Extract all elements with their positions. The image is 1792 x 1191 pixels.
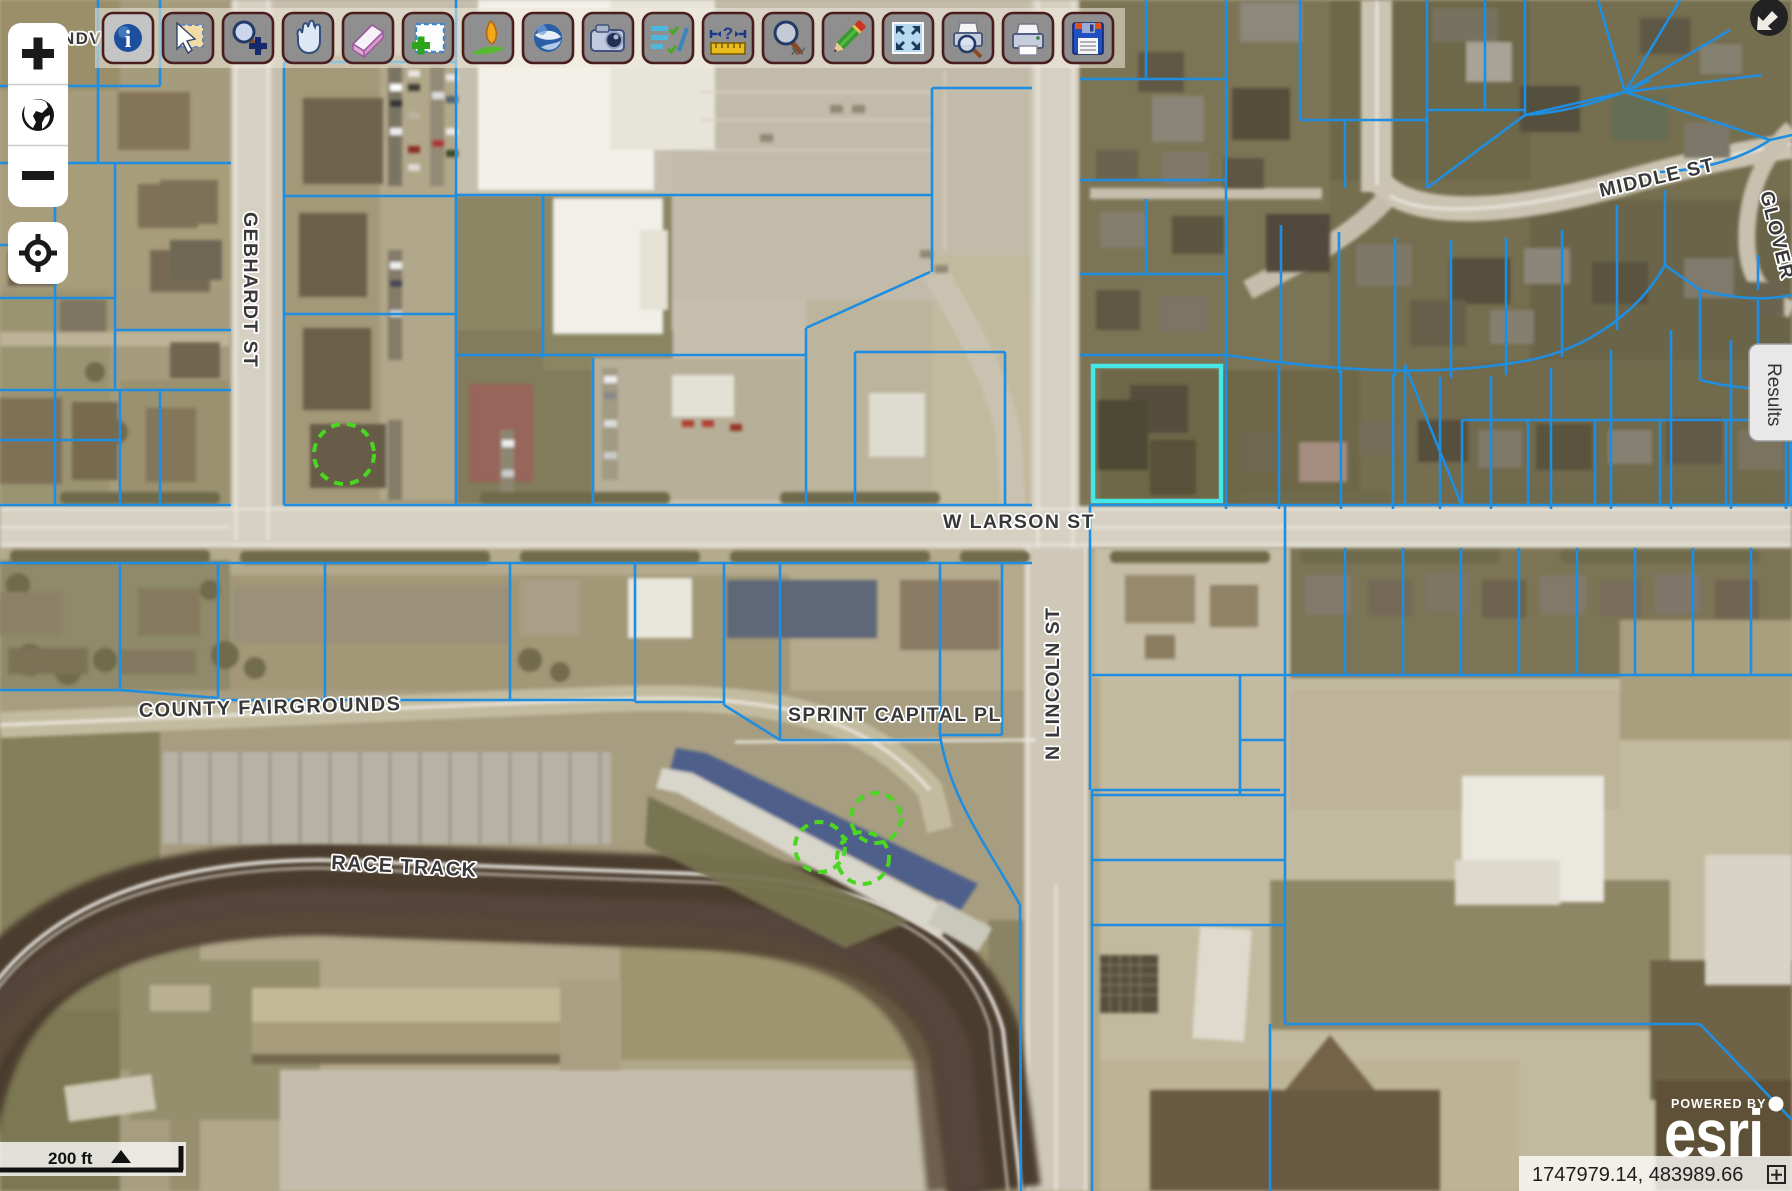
svg-text:1747979.14, 483989.66: 1747979.14, 483989.66 (1532, 1164, 1743, 1186)
svg-text:N LINCOLN ST: N LINCOLN ST (1042, 607, 1064, 760)
svg-text:GEBHARDT ST: GEBHARDT ST (239, 212, 261, 368)
svg-text:i: i (125, 27, 132, 53)
svg-text:XY: XY (791, 46, 806, 58)
svg-text:Results: Results (1763, 363, 1784, 426)
svg-text:200 ft: 200 ft (48, 1149, 93, 1168)
svg-text:SPRINT CAPITAL PL: SPRINT CAPITAL PL (788, 704, 1002, 726)
svg-text:W LARSON ST: W LARSON ST (943, 511, 1095, 533)
svg-text:?: ? (723, 24, 733, 43)
